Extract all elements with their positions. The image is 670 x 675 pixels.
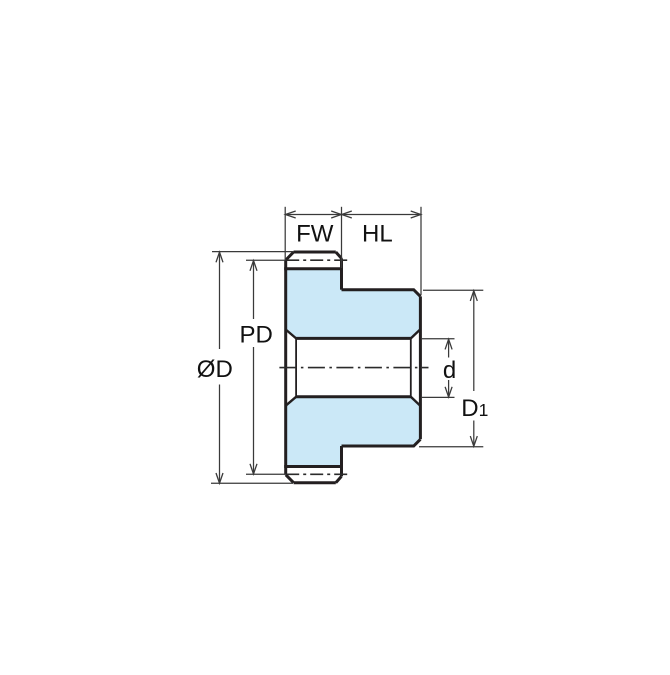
svg-text:HL: HL [362,220,393,247]
svg-text:FW: FW [296,220,334,247]
svg-text:D1: D1 [461,395,488,422]
svg-text:ØD: ØD [197,356,233,383]
svg-text:d: d [443,357,456,384]
svg-text:PD: PD [240,321,273,348]
